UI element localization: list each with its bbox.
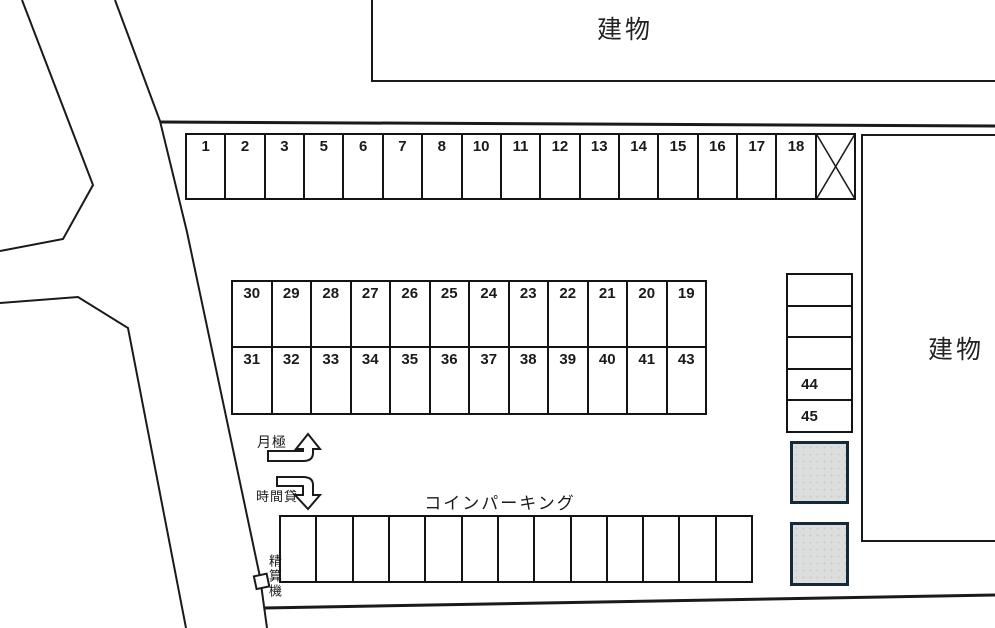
parking-space [570,517,606,581]
parking-space-number: 38 [510,351,548,368]
parking-space-number: 17 [738,138,775,155]
parking-space: 31 [233,348,271,413]
parking-space: 30 [233,282,271,346]
parking-space [606,517,642,581]
blocked-space-icon [817,135,854,198]
parking-row-top: 1235678101112131415161718 [185,133,856,200]
parking-space-number: 19 [668,285,706,302]
parking-space-number: 31 [233,351,271,368]
parking-space-number: 6 [344,138,381,155]
parking-space-number: 40 [589,351,627,368]
parking-row-middle-upper: 302928272625242322212019 [231,280,707,348]
blocked-space [815,135,854,198]
parking-space-number: 18 [777,138,814,155]
parking-space-number: 43 [668,351,706,368]
parking-space-number: 45 [801,408,818,425]
parking-space: 38 [508,348,548,413]
parking-space [352,517,388,581]
parking-space: 34 [350,348,390,413]
parking-row-middle-lower: 313233343536373839404143 [231,346,707,415]
parking-row-coin [279,515,753,583]
parking-lot-diagram: 1235678101112131415161718 30292827262524… [0,0,995,628]
parking-space: 33 [310,348,350,413]
parking-space [388,517,424,581]
parking-space-number: 29 [273,285,311,302]
parking-space: 23 [508,282,548,346]
building-label-right: 建物 [928,330,984,366]
parking-space-number: 10 [463,138,500,155]
parking-column-side: 4445 [786,273,853,433]
parking-space-number: 21 [589,285,627,302]
parking-space-number: 2 [226,138,263,155]
parking-space: 12 [539,135,578,198]
parking-space [461,517,497,581]
coin-parking-label: コインパーキング [415,489,585,514]
monthly-label: 月極 [257,432,287,452]
building-outline-top [372,0,995,81]
parking-space: 20 [626,282,666,346]
parking-space: 26 [389,282,429,346]
parking-space-number: 5 [305,138,342,155]
parking-space-number: 35 [391,351,429,368]
parking-space-number: 26 [391,285,429,302]
parking-space: 45 [788,399,851,431]
parking-space-number: 36 [431,351,469,368]
parking-space [678,517,714,581]
parking-space-number: 1 [187,138,224,155]
lot-south-boundary [264,595,995,608]
parking-space-number: 15 [659,138,696,155]
parking-space-number: 7 [384,138,421,155]
parking-space: 43 [666,348,706,413]
parking-space [424,517,460,581]
reserved-block-upper [790,441,849,504]
parking-space [281,517,315,581]
parking-space-number: 8 [423,138,460,155]
parking-space-number: 27 [352,285,390,302]
parking-space-number: 39 [549,351,587,368]
parking-space: 11 [500,135,539,198]
parking-space: 2 [224,135,263,198]
parking-space: 17 [736,135,775,198]
parking-space: 1 [187,135,224,198]
parking-space [788,336,851,368]
parking-space: 5 [303,135,342,198]
lot-north-boundary [160,122,995,126]
parking-space: 24 [468,282,508,346]
parking-space: 25 [429,282,469,346]
parking-space: 21 [587,282,627,346]
parking-space: 35 [389,348,429,413]
parking-space-number: 41 [628,351,666,368]
parking-space-number: 23 [510,285,548,302]
parking-space [533,517,569,581]
parking-space [497,517,533,581]
parking-space: 28 [310,282,350,346]
parking-space [315,517,351,581]
parking-space: 44 [788,368,851,400]
parking-space: 15 [657,135,696,198]
parking-space: 13 [579,135,618,198]
parking-space-number: 33 [312,351,350,368]
parking-space-number: 32 [273,351,311,368]
parking-space: 32 [271,348,311,413]
parking-space-number: 37 [470,351,508,368]
parking-space: 27 [350,282,390,346]
parking-space: 3 [264,135,303,198]
parking-space-number: 28 [312,285,350,302]
parking-space [715,517,751,581]
parking-space-number: 20 [628,285,666,302]
parking-space [788,305,851,337]
building-label-top: 建物 [597,10,653,46]
payment-machine-label: 精算機 [265,554,284,606]
parking-space-number: 25 [431,285,469,302]
parking-space-number: 22 [549,285,587,302]
parking-space: 8 [421,135,460,198]
parking-space: 6 [342,135,381,198]
parking-space-number: 44 [801,376,818,393]
road-edge-upper-left [0,0,93,251]
parking-space: 40 [587,348,627,413]
parking-space-number: 3 [266,138,303,155]
parking-space: 37 [468,348,508,413]
road-edge-lower-left [0,297,186,628]
parking-space: 10 [461,135,500,198]
parking-space: 16 [697,135,736,198]
parking-space-number: 12 [541,138,578,155]
parking-space-number: 24 [470,285,508,302]
parking-space-number: 16 [699,138,736,155]
parking-space: 39 [547,348,587,413]
parking-space: 36 [429,348,469,413]
reserved-block-lower [790,522,849,586]
parking-space-number: 30 [233,285,271,302]
parking-space [788,275,851,305]
parking-space-number: 13 [581,138,618,155]
parking-space: 14 [618,135,657,198]
parking-space: 18 [775,135,814,198]
hourly-label: 時間貸 [256,486,298,505]
parking-space-number: 11 [502,138,539,155]
parking-space: 22 [547,282,587,346]
parking-space-number: 14 [620,138,657,155]
parking-space: 19 [666,282,706,346]
parking-space: 7 [382,135,421,198]
parking-space: 41 [626,348,666,413]
parking-space: 29 [271,282,311,346]
parking-space [642,517,678,581]
parking-space-number: 34 [352,351,390,368]
